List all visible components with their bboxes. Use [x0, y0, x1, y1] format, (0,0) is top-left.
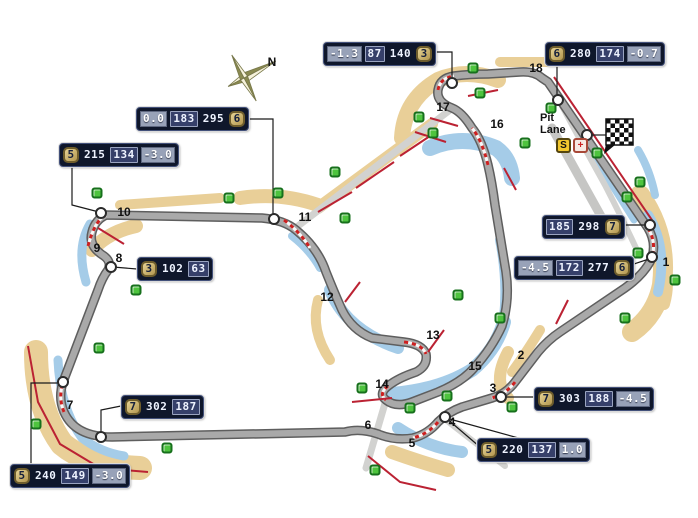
marshal-post-icon	[495, 313, 506, 324]
g-force-value: -3.0	[141, 147, 176, 163]
speed-mph-value: 188	[585, 391, 612, 407]
telemetry-point-marker[interactable]	[552, 94, 564, 106]
gear-indicator: 5	[481, 442, 497, 458]
marshal-post-icon	[620, 313, 631, 324]
g-force-value: -1.3	[327, 46, 362, 62]
speed-kmh-value: 298	[576, 220, 601, 234]
g-force-value: -0.7	[627, 46, 662, 62]
gear-indicator: 5	[14, 468, 30, 484]
corner-number: 10	[117, 205, 130, 219]
telemetry-box-turn1: -4.51722776	[514, 256, 634, 280]
speed-mph-value: 183	[170, 111, 197, 127]
marshal-post-icon	[507, 402, 518, 413]
marshal-post-icon	[273, 188, 284, 199]
pit-lane-label: Pit Lane	[540, 112, 566, 136]
track-map: 123456789101112131415161718-1.3871403628…	[0, 0, 698, 518]
g-force-value: 0.0	[140, 111, 167, 127]
telemetry-point-marker[interactable]	[95, 207, 107, 219]
pit-medical-badge: +	[573, 138, 588, 153]
telemetry-box-turn7: 5240149-3.0	[10, 464, 130, 488]
gear-indicator: 7	[538, 391, 554, 407]
speed-mph-value: 172	[556, 260, 583, 276]
corner-number: 8	[116, 251, 123, 265]
telemetry-box-turn10: 5215134-3.0	[59, 143, 179, 167]
corner-number: 18	[529, 61, 542, 75]
telemetry-point-marker[interactable]	[439, 411, 451, 423]
telemetry-point-marker[interactable]	[105, 261, 117, 273]
marshal-post-icon	[357, 383, 368, 394]
speed-mph-value: 149	[61, 468, 88, 484]
speed-mph-value: 174	[596, 46, 623, 62]
marshal-post-icon	[468, 63, 479, 74]
marshal-post-icon	[330, 167, 341, 178]
gear-indicator: 6	[549, 46, 565, 62]
corner-number: 7	[67, 398, 74, 412]
map-overlay: 123456789101112131415161718-1.3871403628…	[0, 0, 698, 518]
telemetry-point-marker[interactable]	[646, 251, 658, 263]
telemetry-box-turn4: 52201371.0	[477, 438, 590, 462]
marshal-post-icon	[31, 419, 42, 430]
marshal-post-icon	[520, 138, 531, 149]
marshal-post-icon	[405, 403, 416, 414]
corner-number: 14	[375, 377, 388, 391]
speed-kmh-value: 295	[201, 112, 226, 126]
speed-mph-value: 185	[546, 219, 573, 235]
speed-kmh-value: 280	[568, 47, 593, 61]
corner-number: 15	[468, 359, 481, 373]
corner-number: 9	[94, 241, 101, 255]
telemetry-point-marker[interactable]	[57, 376, 69, 388]
telemetry-point-marker[interactable]	[495, 391, 507, 403]
speed-mph-value: 137	[528, 442, 555, 458]
gear-indicator: 6	[614, 260, 630, 276]
marshal-post-icon	[592, 148, 603, 159]
telemetry-point-marker[interactable]	[644, 219, 656, 231]
telemetry-box-turn3: 7303188-4.5	[534, 387, 654, 411]
speed-kmh-value: 302	[144, 400, 169, 414]
marshal-post-icon	[635, 177, 646, 188]
speed-kmh-value: 220	[500, 443, 525, 457]
g-force-value: -3.0	[92, 468, 127, 484]
telemetry-box-turn17: -1.3871403	[323, 42, 436, 66]
marshal-post-icon	[370, 465, 381, 476]
telemetry-point-marker[interactable]	[268, 213, 280, 225]
marshal-post-icon	[131, 285, 142, 296]
telemetry-point-marker[interactable]	[95, 431, 107, 443]
marshal-post-icon	[670, 275, 681, 286]
pit-lane-label-line1: Pit	[540, 112, 566, 124]
marshal-post-icon	[633, 248, 644, 259]
speed-kmh-value: 215	[82, 148, 107, 162]
gear-indicator: 3	[141, 261, 157, 277]
telemetry-box-turn8: 310263	[137, 257, 213, 281]
telemetry-point-marker[interactable]	[446, 77, 458, 89]
speed-kmh-value: 240	[33, 469, 58, 483]
corner-number: 16	[490, 117, 503, 131]
speed-mph-value: 134	[110, 147, 137, 163]
corner-number: 1	[663, 255, 670, 269]
corner-number: 11	[299, 210, 312, 224]
speed-kmh-value: 277	[586, 261, 611, 275]
gear-indicator: 3	[416, 46, 432, 62]
marshal-post-icon	[453, 290, 464, 301]
pit-lane-label-line2: Lane	[540, 124, 566, 136]
marshal-post-icon	[94, 343, 105, 354]
marshal-post-icon	[162, 443, 173, 454]
gear-indicator: 5	[63, 147, 79, 163]
telemetry-box-back-straight: 7302187	[121, 395, 204, 419]
speed-kmh-value: 140	[388, 47, 413, 61]
speed-kmh-value: 102	[160, 262, 185, 276]
marshal-post-icon	[92, 188, 103, 199]
pit-start-badge: S	[556, 138, 571, 153]
corner-number: 2	[518, 348, 525, 362]
corner-number: 5	[409, 436, 416, 450]
g-force-value: 1.0	[559, 442, 586, 458]
marshal-post-icon	[224, 193, 235, 204]
g-force-value: -4.5	[616, 391, 651, 407]
speed-kmh-value: 303	[557, 392, 582, 406]
marshal-post-icon	[428, 128, 439, 139]
marshal-post-icon	[340, 213, 351, 224]
speed-mph-value: 87	[365, 46, 385, 62]
compass-north-label: N	[268, 55, 277, 69]
telemetry-box-turn11: 0.01832956	[136, 107, 249, 131]
g-force-value: -4.5	[518, 260, 553, 276]
corner-number: 17	[436, 100, 449, 114]
gear-indicator: 7	[605, 219, 621, 235]
gear-indicator: 7	[125, 399, 141, 415]
marshal-post-icon	[442, 391, 453, 402]
speed-mph-value: 63	[188, 261, 208, 277]
corner-number: 6	[365, 418, 372, 432]
telemetry-box-turn18: 6280174-0.7	[545, 42, 665, 66]
telemetry-box-main-straight: 1852987	[542, 215, 625, 239]
marshal-post-icon	[475, 88, 486, 99]
speed-mph-value: 187	[172, 399, 199, 415]
marshal-post-icon	[622, 192, 633, 203]
corner-number: 13	[426, 328, 439, 342]
corner-number: 12	[320, 290, 333, 304]
marshal-post-icon	[414, 112, 425, 123]
gear-indicator: 6	[229, 111, 245, 127]
